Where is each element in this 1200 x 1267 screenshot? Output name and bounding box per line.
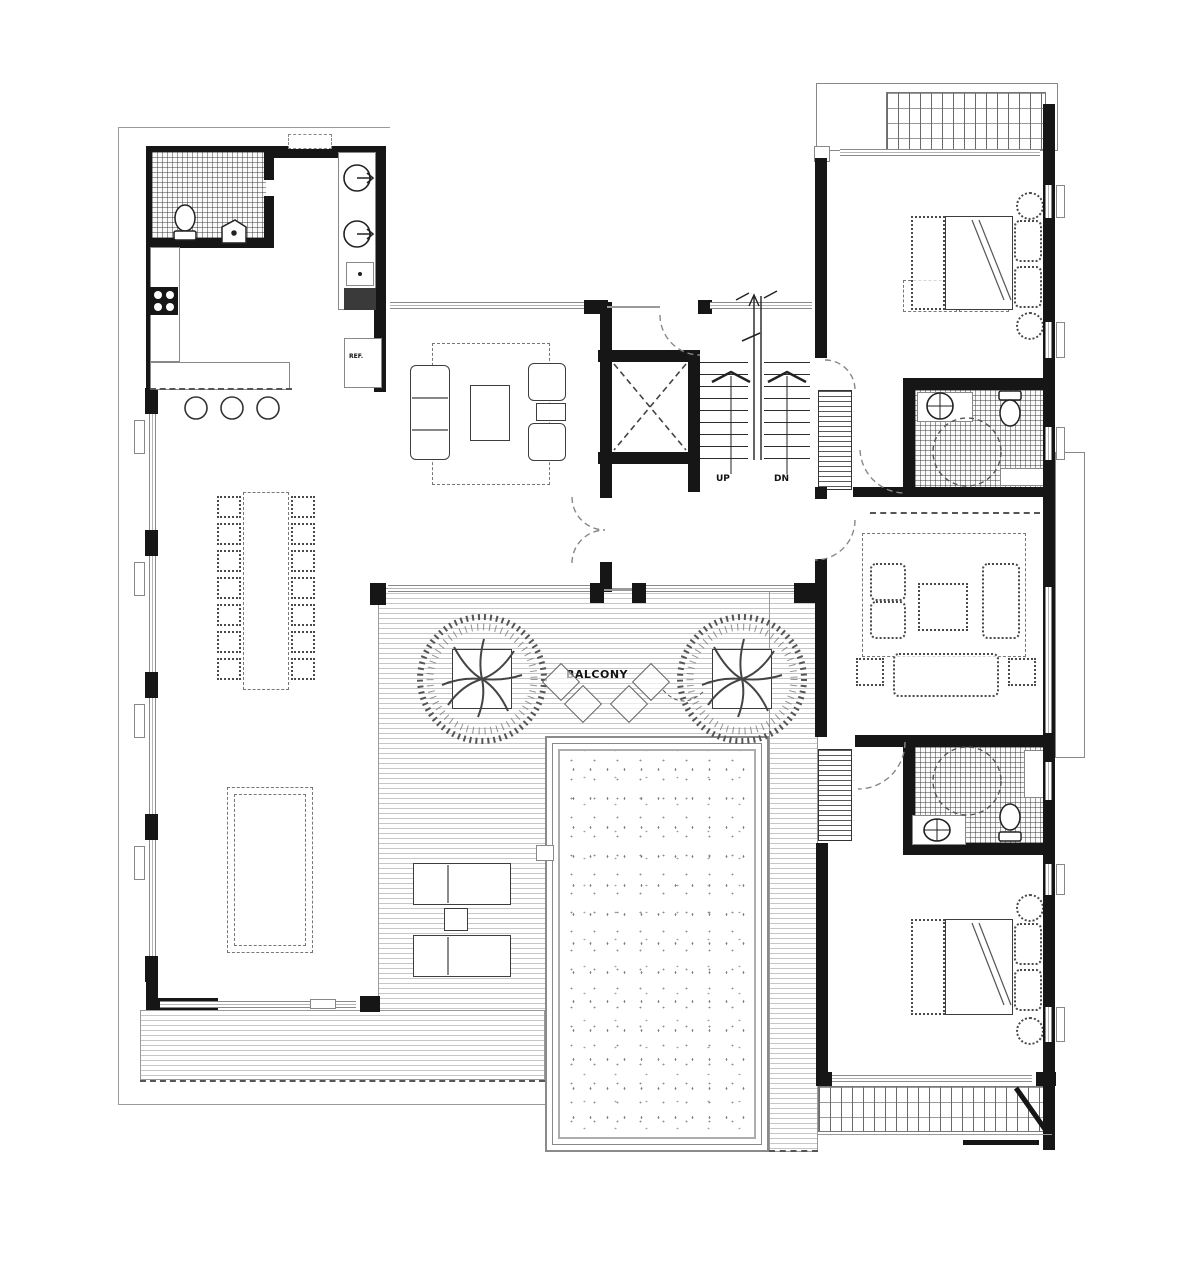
shower-icon [933, 747, 1001, 815]
floor-plan-canvas: REF. UP DN [0, 0, 1200, 1267]
tree-icon [680, 617, 804, 741]
stair-arrow-icon [712, 291, 806, 474]
bed-fold-line [972, 220, 1011, 1005]
sink-basin-icon [927, 393, 953, 419]
linework-overlay [0, 0, 1200, 1267]
toilet-icon [999, 391, 1021, 426]
elevator-x-icon [614, 364, 686, 450]
tree-icon [420, 617, 544, 741]
shower-icon [933, 418, 1001, 486]
furniture-detail-lines [412, 398, 448, 975]
corner-sink-icon [222, 220, 246, 243]
bar-stools [185, 397, 279, 419]
planter-diagonal [1016, 1088, 1047, 1132]
sink-basin-icon [924, 819, 950, 841]
sink-basin-icon [344, 165, 373, 247]
stepping-stones [543, 664, 670, 723]
appliance-knob [358, 272, 362, 276]
toilet-icon [174, 205, 196, 240]
toilet-icon [999, 804, 1021, 841]
door-arc-icon [572, 315, 905, 789]
stove-burners-icon [150, 287, 178, 315]
